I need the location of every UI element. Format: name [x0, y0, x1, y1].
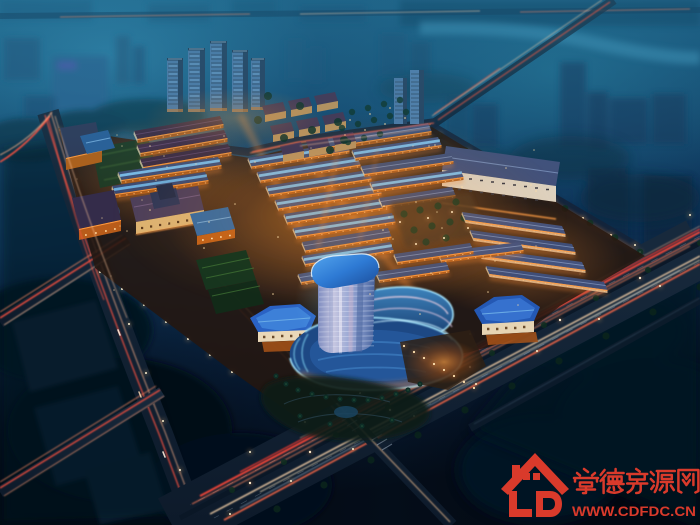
svg-text:WWW.CDFDC.CN: WWW.CDFDC.CN	[572, 504, 696, 519]
